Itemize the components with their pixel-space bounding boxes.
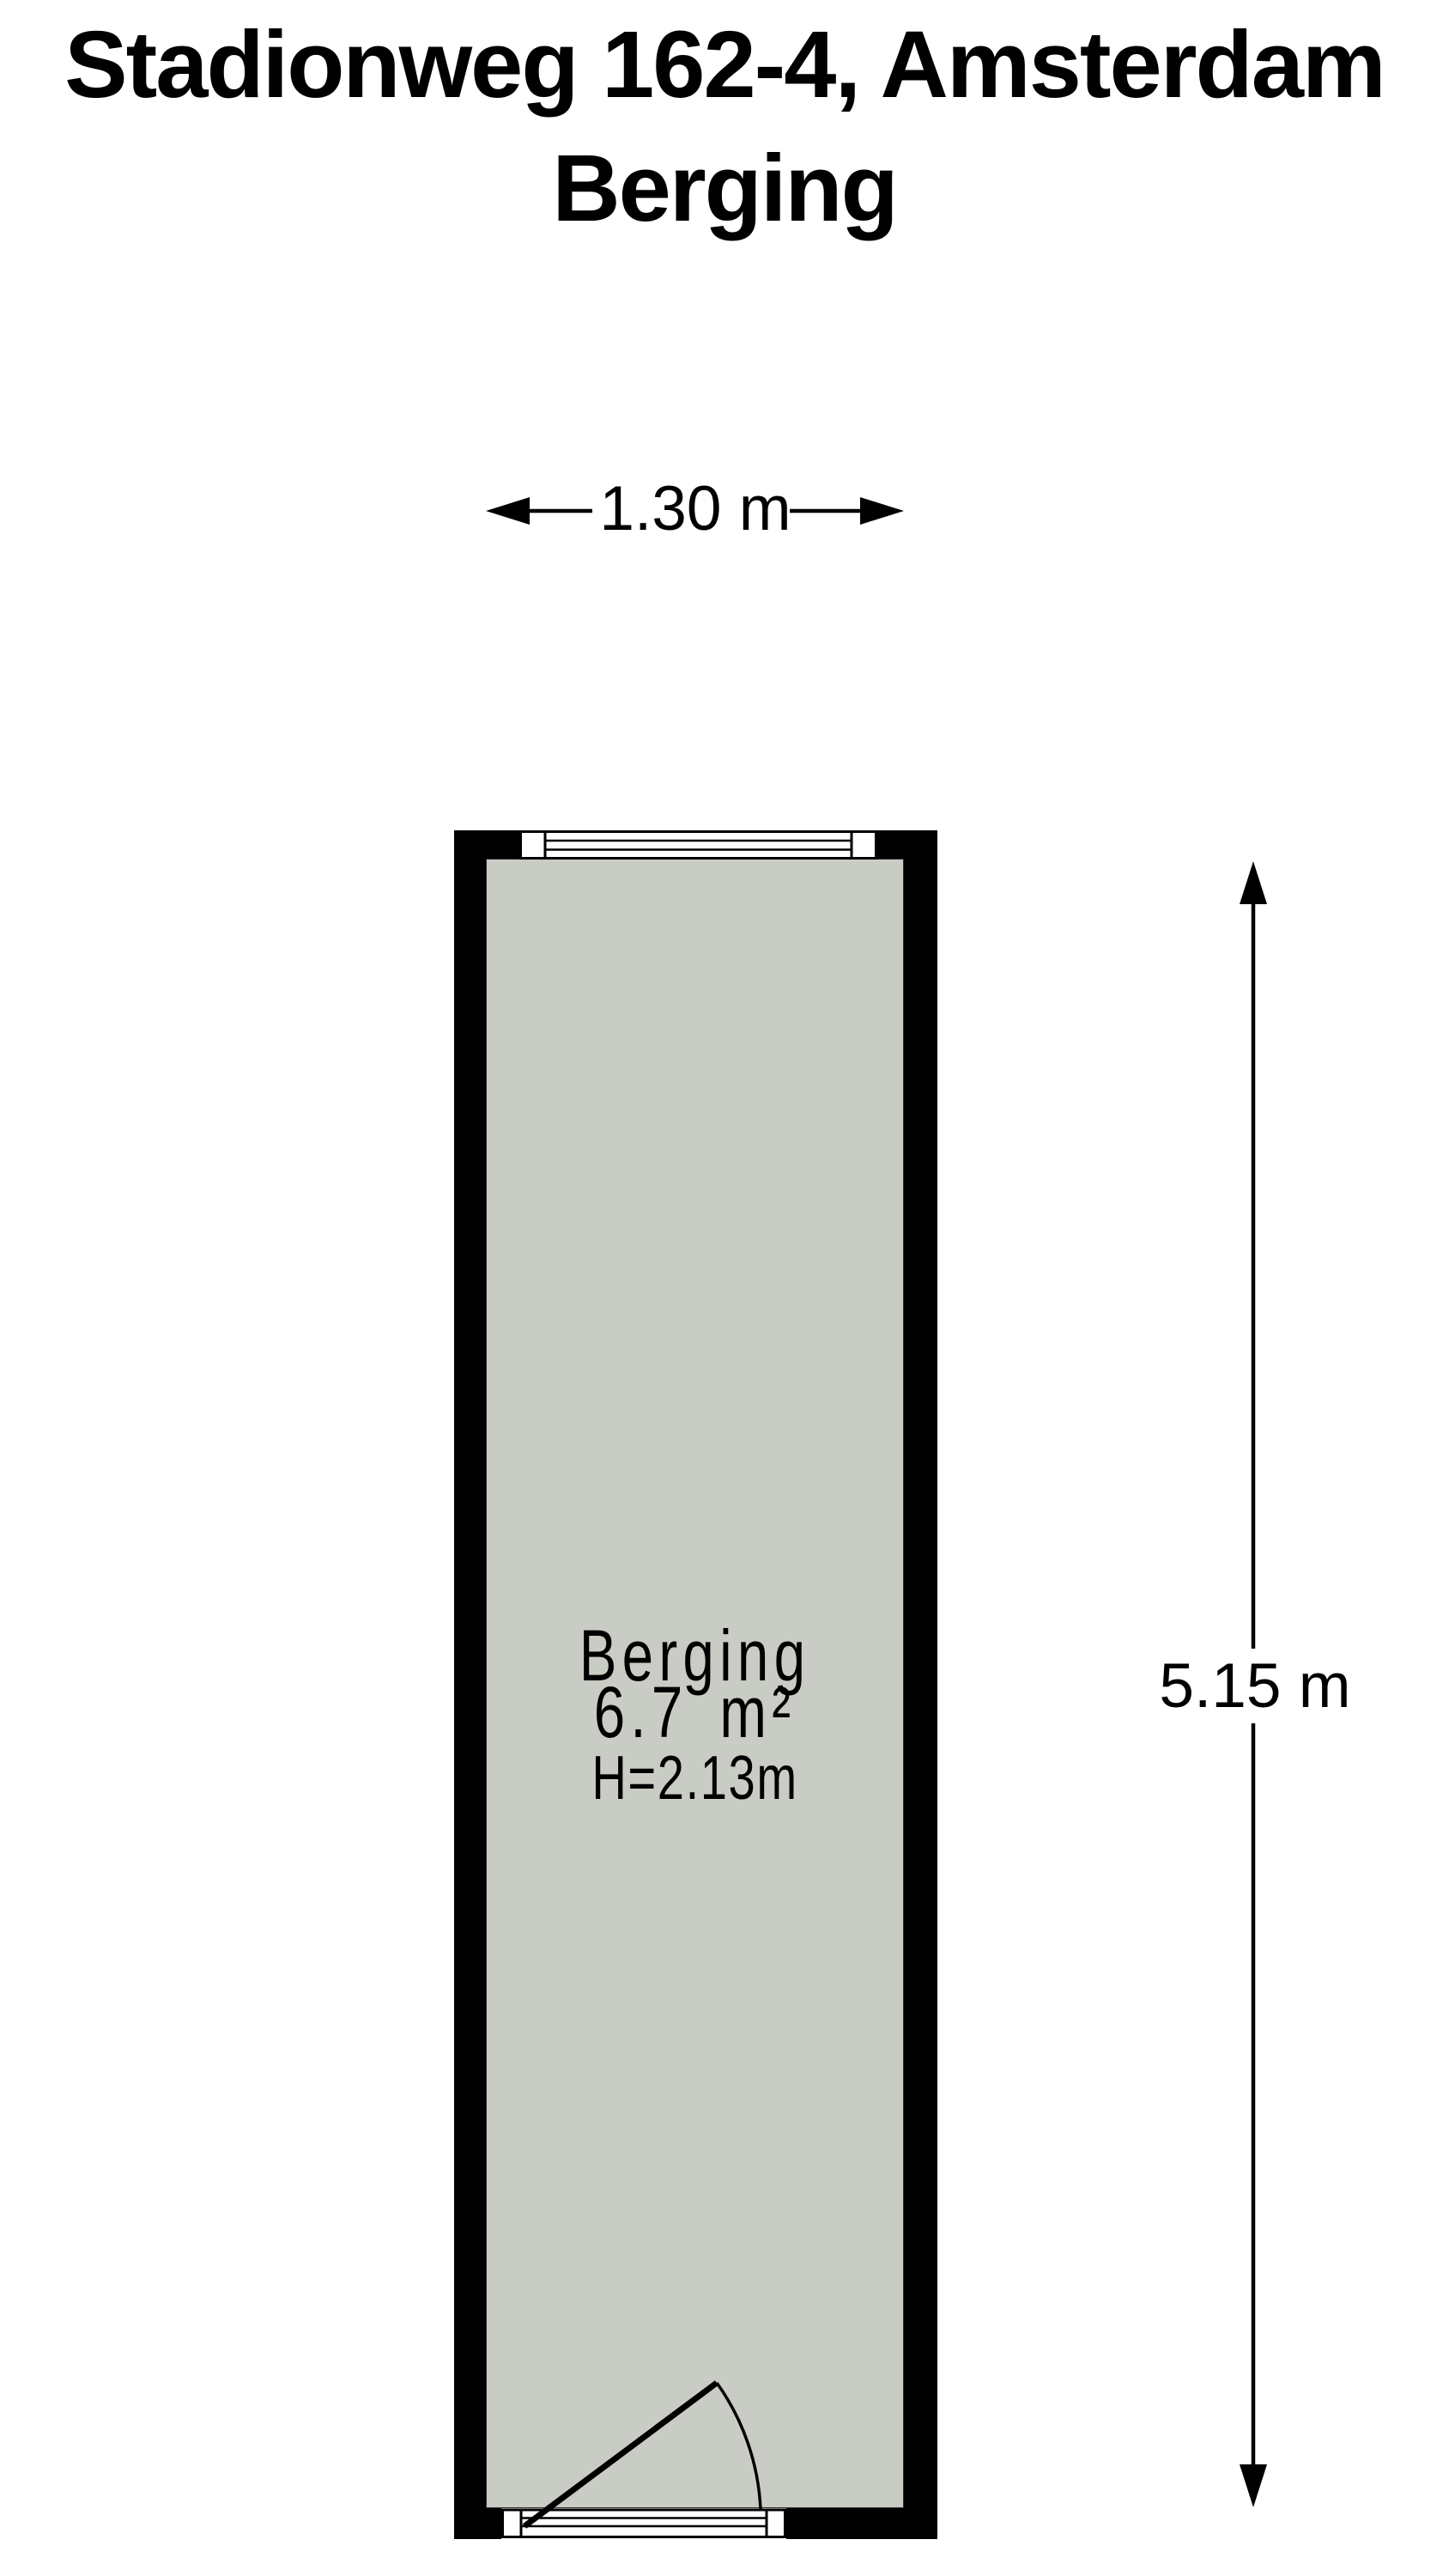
window-top (519, 830, 877, 859)
arrow-up-icon (1240, 861, 1267, 904)
arrow-right-icon (860, 497, 904, 525)
arrow-left-icon (486, 497, 530, 525)
wall-top-right-block (877, 830, 937, 859)
arrow-down-icon (1240, 2464, 1267, 2507)
window-band (519, 830, 877, 859)
room-area-label: 6.7 m² (525, 1676, 864, 1748)
width-dimension-label: 1.30 m (567, 477, 824, 540)
wall-bottom-right-segment (784, 2508, 937, 2539)
wall-left (454, 830, 486, 2539)
wall-top-left-block (454, 830, 519, 859)
wall-bottom-left-segment (454, 2508, 501, 2539)
wall-right (904, 830, 937, 2539)
room-ceiling-height-label: H=2.13m (525, 1747, 864, 1809)
height-dimension-label: 5.15 m (1126, 1655, 1384, 1717)
floor-plan (0, 0, 1449, 2576)
